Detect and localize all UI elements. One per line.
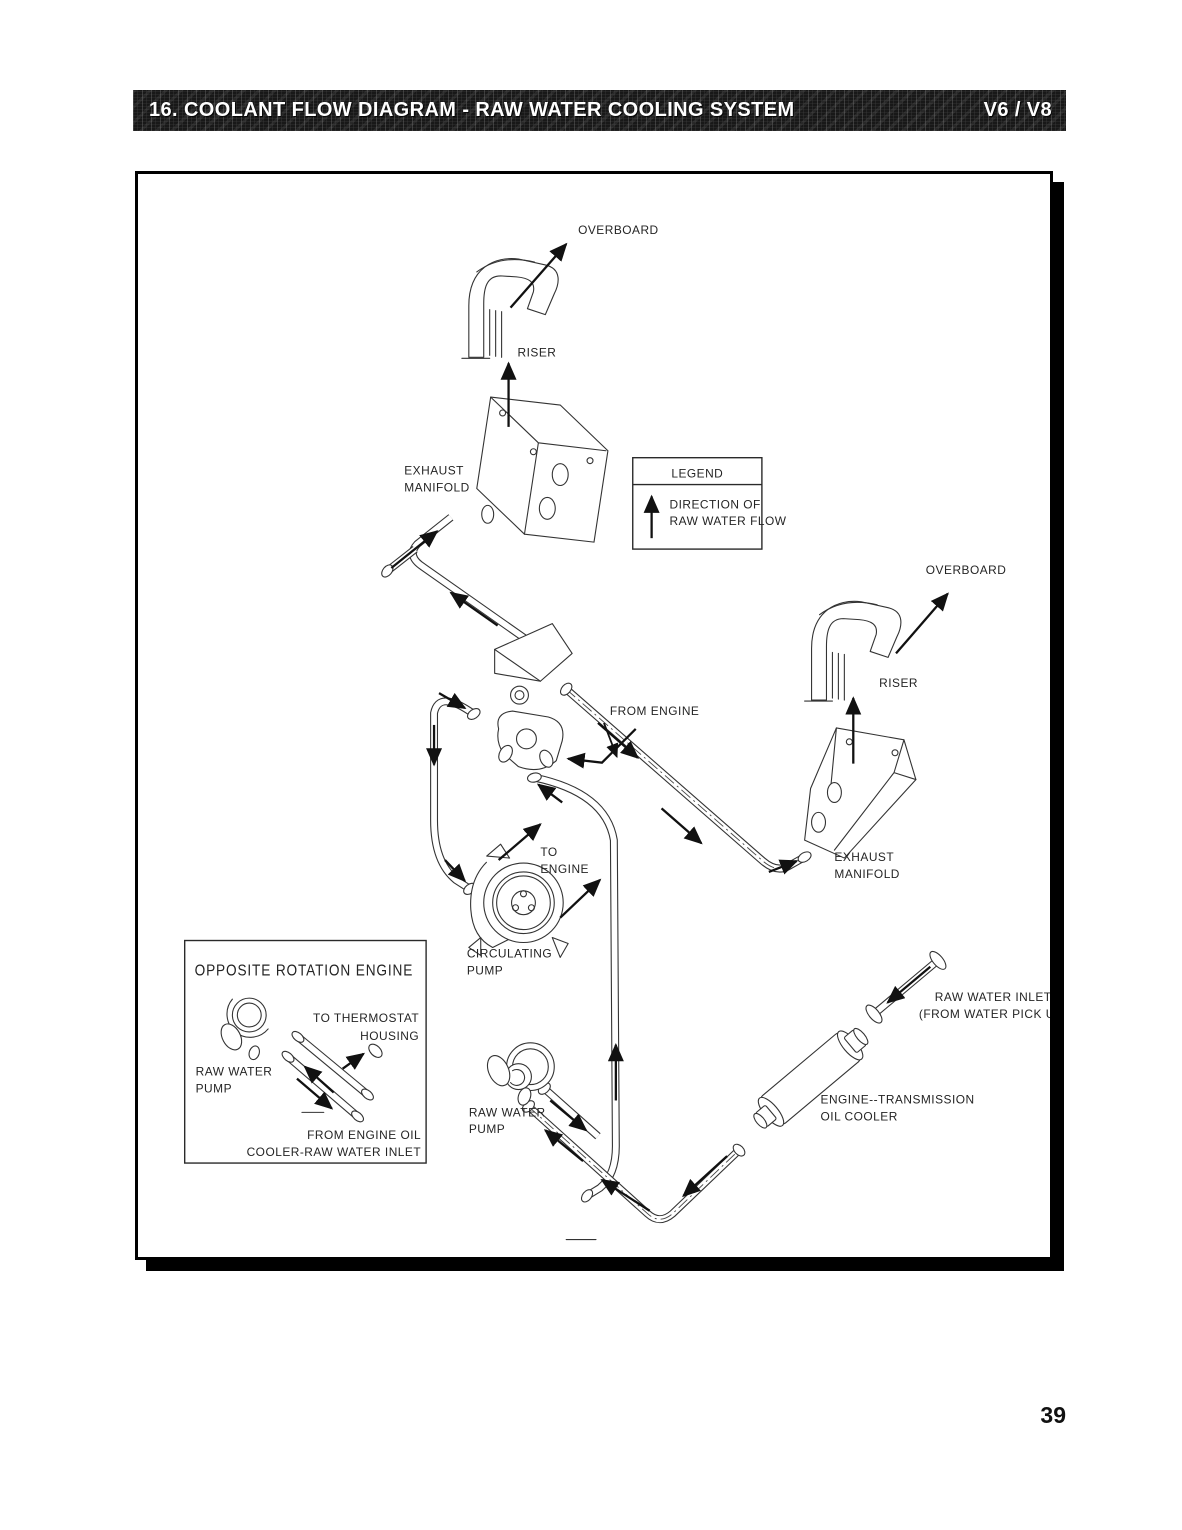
- inset-label-raw-water-pump-line2: PUMP: [196, 1082, 232, 1096]
- hose-vertical-riser-feed: [527, 772, 616, 1204]
- label-exhaust-manifold-left-line1: EXHAUST: [404, 464, 464, 478]
- inset-label-from-engine-oil-line2: COOLER-RAW WATER INLET: [247, 1145, 422, 1159]
- exhaust-manifold-right-drawing: [805, 728, 916, 858]
- label-raw-water-pump-line2: PUMP: [469, 1122, 505, 1136]
- label-circulating-pump-line2: PUMP: [467, 963, 503, 977]
- arrow-overboard-right: [896, 594, 948, 654]
- legend-title: LEGEND: [671, 467, 723, 481]
- diagram-labels: OVERBOARD RISER EXHAUST MANIFOLD OVERBOA…: [404, 223, 1050, 1136]
- arrow-from-engine-1: [598, 723, 638, 758]
- legend-entry-line1: DIRECTION OF: [670, 497, 761, 511]
- opposite-rotation-inset: OPPOSITE ROTATION ENGINE: [185, 941, 426, 1164]
- label-raw-water-inlet-line1: RAW WATER INLET: [935, 990, 1050, 1004]
- inset-label-to-thermostat-line2: HOUSING: [360, 1029, 419, 1043]
- diagram-frame: LEGEND DIRECTION OF RAW WATER FLOW OPPOS…: [135, 171, 1053, 1260]
- thermostat-housing-drawing: [495, 624, 572, 770]
- riser-left-drawing: [462, 259, 558, 359]
- inset-raw-water-pump-drawing: [217, 998, 268, 1061]
- label-exhaust-manifold-right-line2: MANIFOLD: [834, 867, 900, 881]
- arrow-to-engine-1: [499, 824, 541, 860]
- label-oil-cooler-line1: ENGINE--TRANSMISSION: [821, 1092, 975, 1106]
- label-overboard-right: OVERBOARD: [926, 563, 1007, 577]
- arrow-from-engine-2: [662, 808, 702, 843]
- label-oil-cooler-line2: OIL COOLER: [821, 1109, 898, 1123]
- raw-water-pump-drawing: [483, 1043, 554, 1107]
- label-overboard-left: OVERBOARD: [578, 223, 659, 237]
- arrow-to-engine-2: [560, 880, 600, 918]
- coolant-flow-diagram: LEGEND DIRECTION OF RAW WATER FLOW OPPOS…: [138, 174, 1050, 1257]
- page-number: 39: [1000, 1402, 1066, 1429]
- section-title: 16. COOLANT FLOW DIAGRAM - RAW WATER COO…: [149, 99, 795, 122]
- label-circulating-pump-line1: CIRCULATING: [467, 946, 552, 960]
- section-header-bar: 16. COOLANT FLOW DIAGRAM - RAW WATER COO…: [133, 90, 1066, 131]
- label-exhaust-manifold-left-line2: MANIFOLD: [404, 480, 470, 494]
- legend-entry-line2: RAW WATER FLOW: [670, 514, 787, 528]
- inset-label-raw-water-pump-line1: RAW WATER: [196, 1065, 273, 1079]
- label-raw-water-inlet-line2: (FROM WATER PICK UP): [919, 1007, 1050, 1021]
- label-from-engine: FROM ENGINE: [610, 704, 699, 718]
- label-to-engine-line2: ENGINE: [540, 862, 589, 876]
- exhaust-manifold-left-drawing: [477, 397, 608, 542]
- label-raw-water-pump-line1: RAW WATER: [469, 1105, 546, 1119]
- legend-box: LEGEND DIRECTION OF RAW WATER FLOW: [633, 458, 787, 549]
- label-riser-left: RISER: [518, 345, 557, 359]
- engine-variant-label: V6 / V8: [984, 99, 1052, 122]
- inset-title: OPPOSITE ROTATION ENGINE: [195, 962, 414, 979]
- inset-label-from-engine-oil-line1: FROM ENGINE OIL: [307, 1128, 421, 1142]
- arrow-raw-water-inlet: [888, 967, 931, 1003]
- label-to-engine-line1: TO: [540, 845, 557, 859]
- inset-hoses: [280, 1029, 384, 1124]
- inset-label-to-thermostat-line1: TO THERMOSTAT: [313, 1011, 419, 1025]
- hose-left-loop: [434, 701, 482, 896]
- label-exhaust-manifold-right-line1: EXHAUST: [834, 850, 894, 864]
- label-riser-right: RISER: [879, 676, 918, 690]
